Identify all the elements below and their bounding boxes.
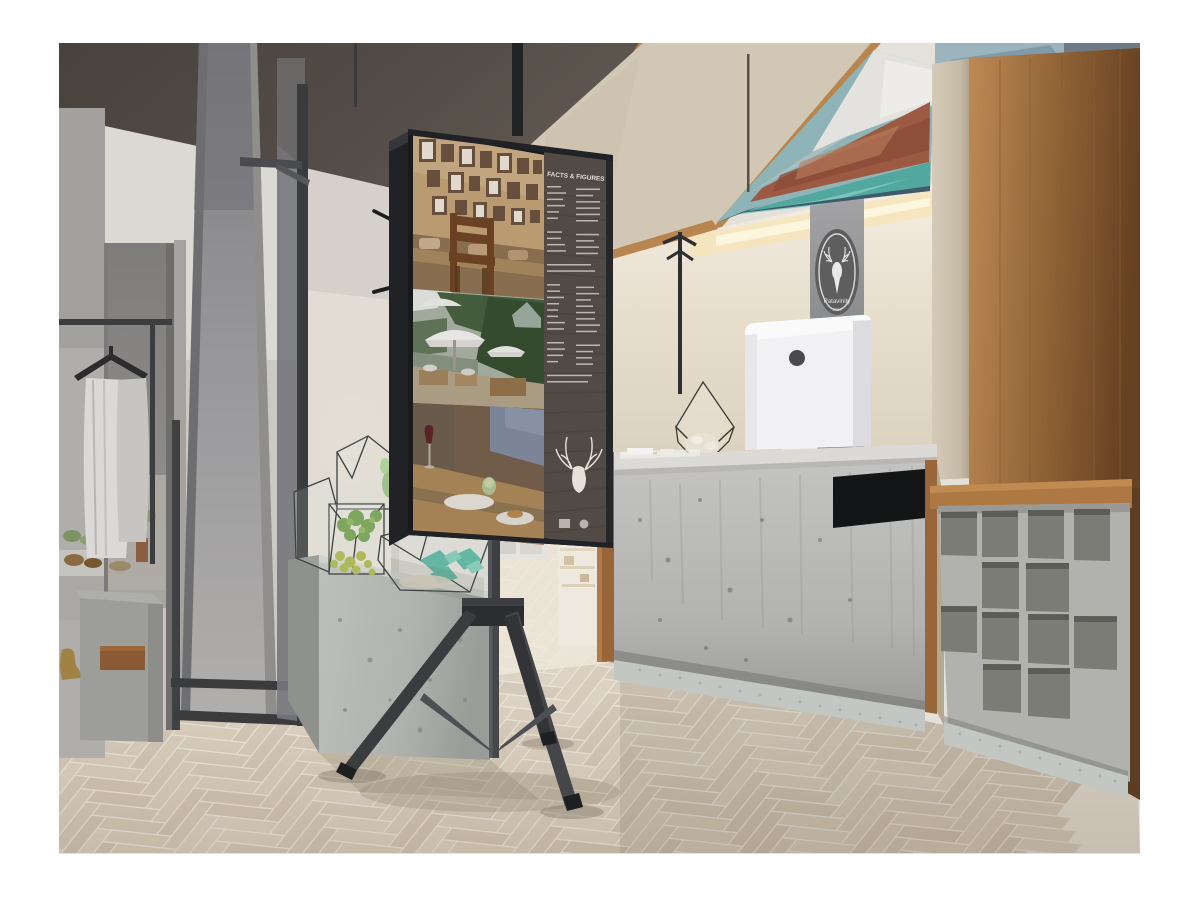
svg-text:2015: 2015 <box>832 307 842 312</box>
svg-text:Patavinity: Patavinity <box>824 298 852 305</box>
